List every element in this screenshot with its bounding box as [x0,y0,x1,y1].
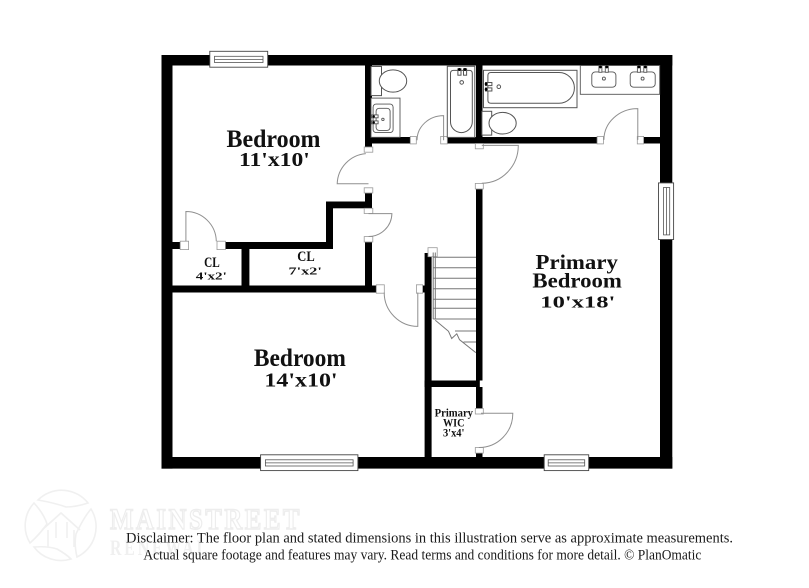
svg-text:14'x10': 14'x10' [264,370,337,392]
svg-text:CL: CL [297,249,315,265]
svg-text:Bedroom: Bedroom [532,269,622,293]
svg-text:4'x2': 4'x2' [196,271,227,283]
svg-text:CL: CL [204,255,220,271]
svg-text:Actual square footage and feat: Actual square footage and features may v… [143,548,701,564]
svg-text:Disclaimer: The floor plan and: Disclaimer: The floor plan and stated di… [126,531,733,547]
svg-text:Bedroom: Bedroom [254,345,346,372]
svg-text:3'x4': 3'x4' [443,428,465,440]
svg-text:7'x2': 7'x2' [289,266,322,278]
svg-text:10'x18': 10'x18' [540,292,615,311]
svg-text:11'x10': 11'x10' [239,149,310,171]
